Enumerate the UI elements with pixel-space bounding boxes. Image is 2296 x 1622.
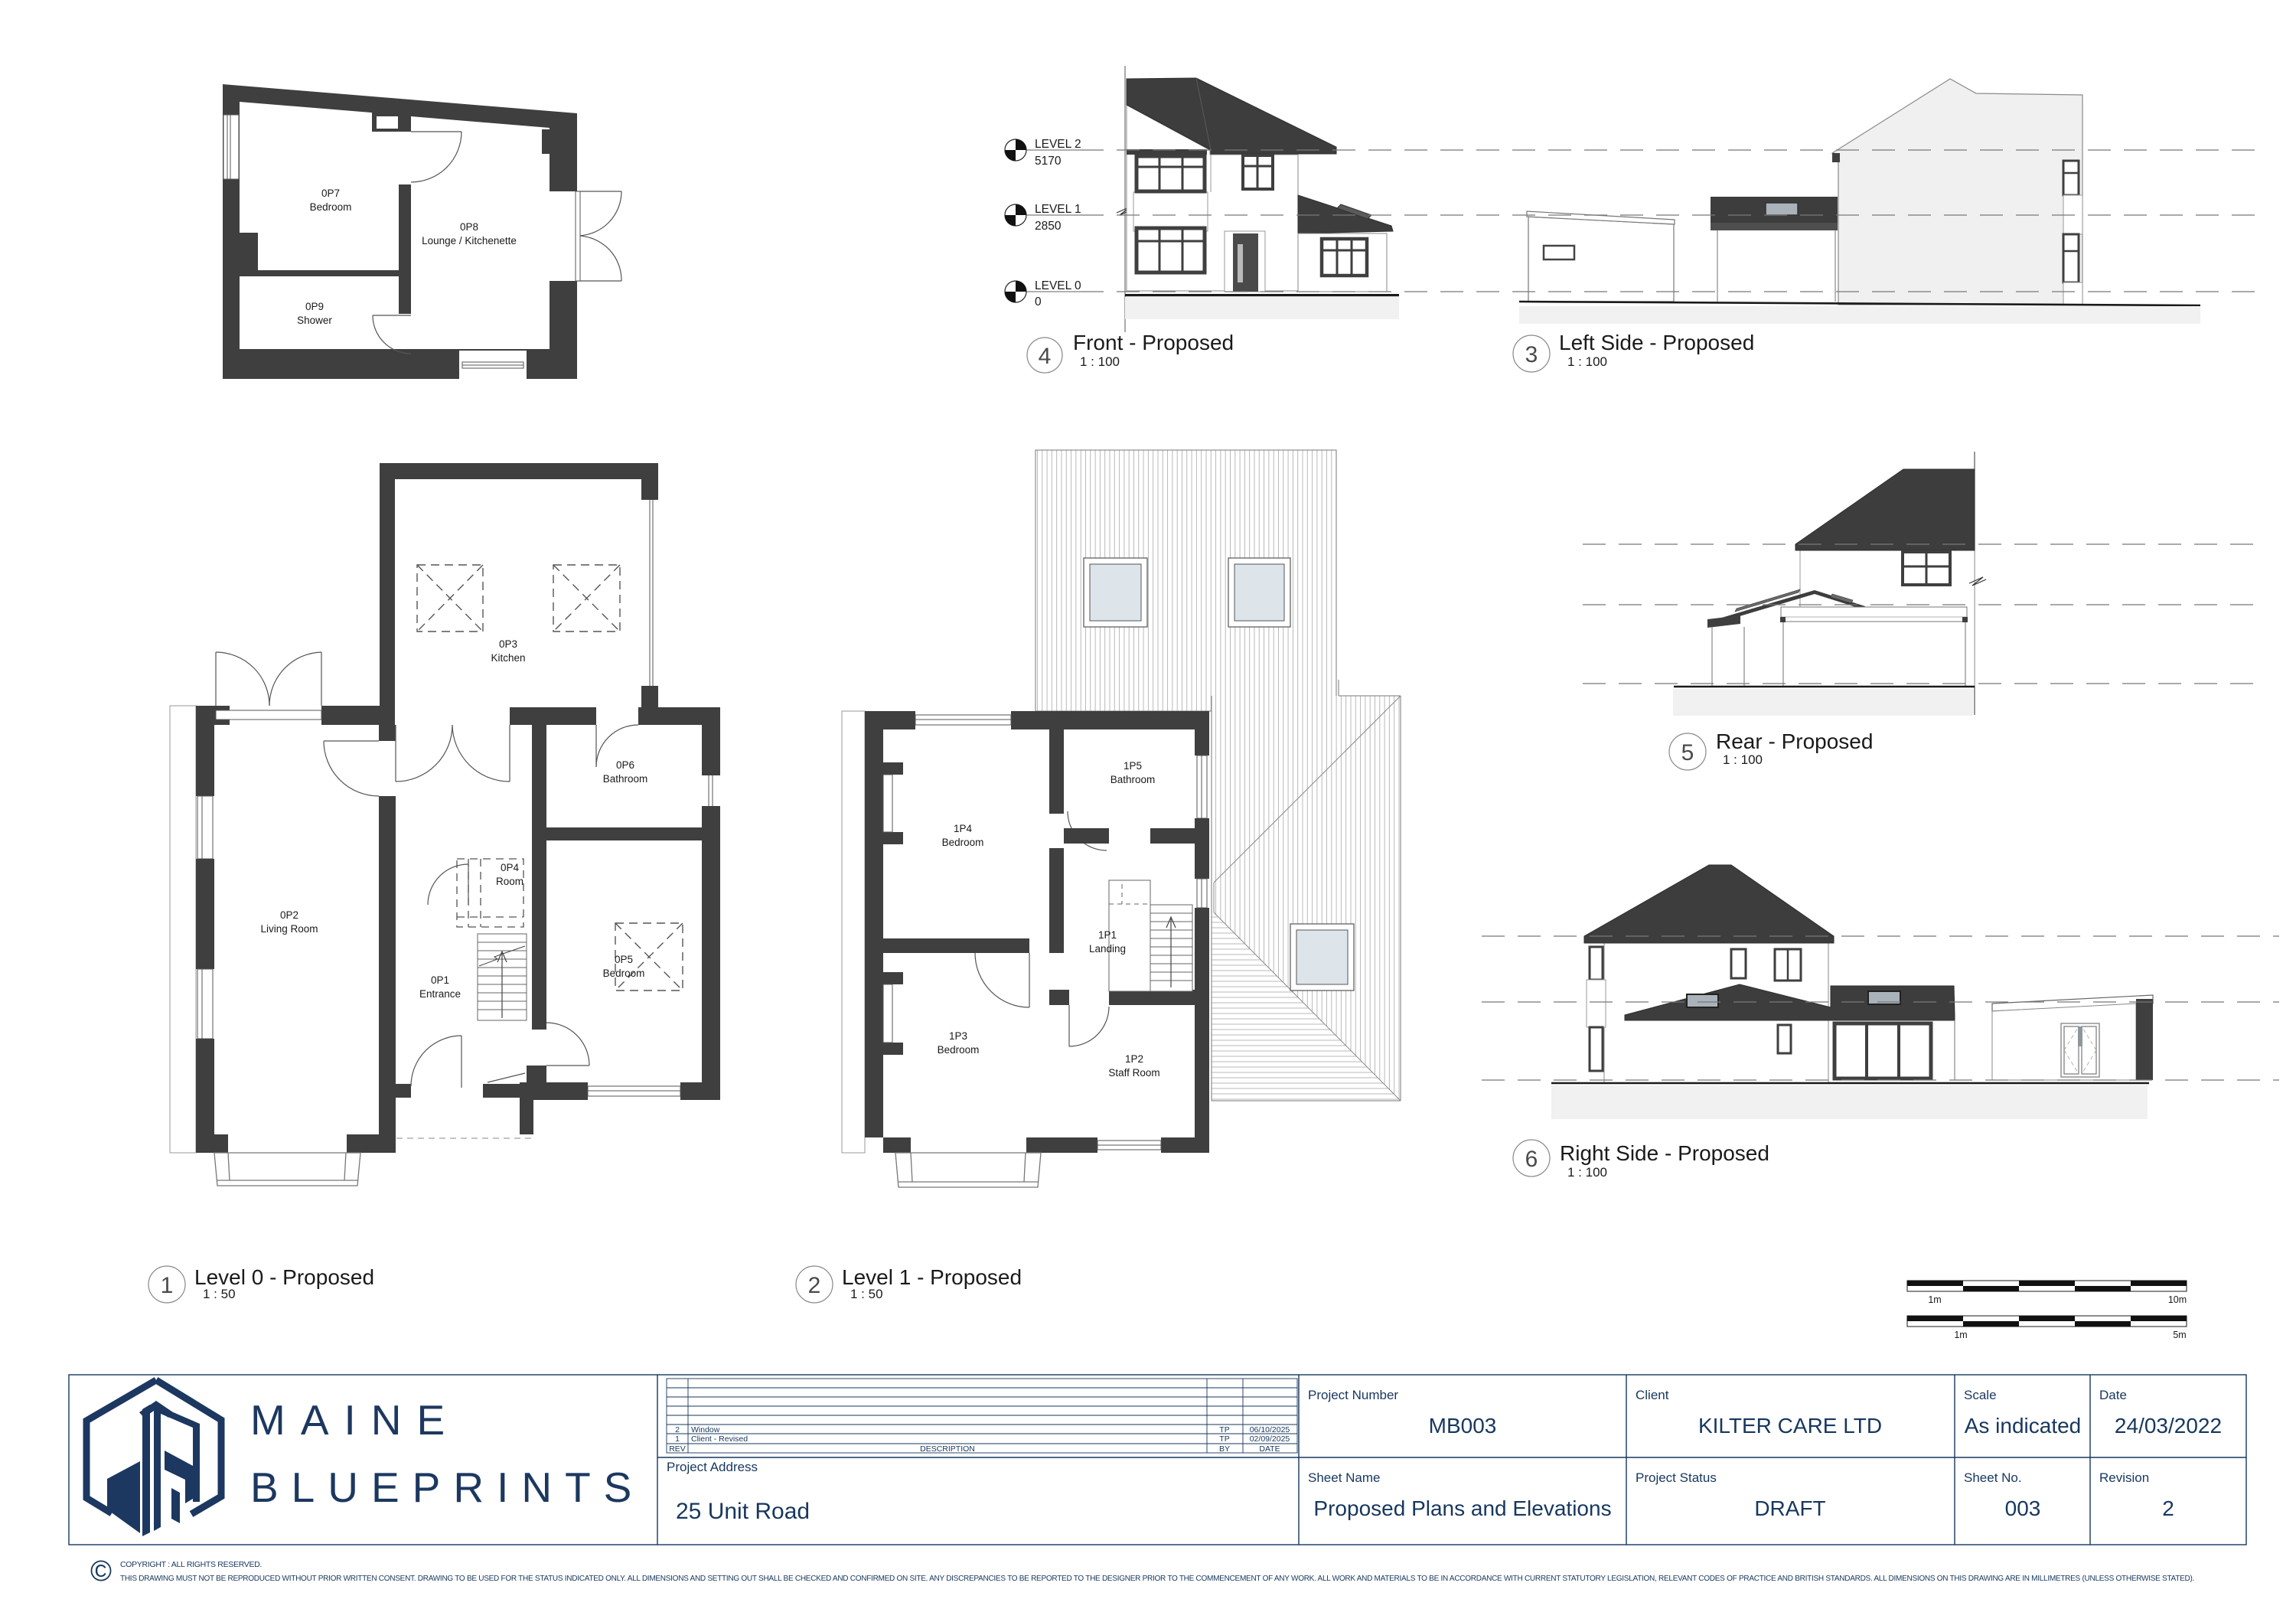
svg-text:Client - Revised: Client - Revised	[691, 1434, 748, 1444]
svg-text:1 : 50: 1 : 50	[203, 1287, 236, 1301]
svg-text:DESCRIPTION: DESCRIPTION	[920, 1444, 975, 1454]
svg-text:1P5: 1P5	[1124, 760, 1142, 772]
svg-text:Right Side - Proposed: Right Side - Proposed	[1560, 1141, 1769, 1165]
svg-text:Date: Date	[2099, 1388, 2127, 1402]
svg-text:1 : 100: 1 : 100	[1723, 752, 1763, 767]
svg-text:Bedroom: Bedroom	[310, 201, 352, 213]
svg-text:LEVEL 0: LEVEL 0	[1035, 279, 1081, 292]
svg-text:TP: TP	[1219, 1425, 1229, 1434]
svg-text:Bathroom: Bathroom	[603, 773, 648, 785]
svg-text:Project Address: Project Address	[667, 1460, 758, 1474]
svg-text:0: 0	[1035, 295, 1042, 308]
svg-text:0P6: 0P6	[616, 759, 634, 771]
svg-text:0P7: 0P7	[321, 188, 340, 199]
svg-text:Level 1 - Proposed: Level 1 - Proposed	[842, 1265, 1022, 1289]
svg-text:1P1: 1P1	[1098, 929, 1117, 941]
svg-text:Client: Client	[1636, 1388, 1669, 1402]
svg-text:Living Room: Living Room	[260, 923, 318, 935]
svg-text:1P2: 1P2	[1125, 1053, 1143, 1065]
svg-text:1m: 1m	[1954, 1330, 1967, 1340]
svg-text:COPYRIGHT : ALL RIGHTS RESERVE: COPYRIGHT : ALL RIGHTS RESERVED.	[120, 1560, 262, 1569]
svg-text:1P4: 1P4	[954, 823, 973, 834]
svg-text:Revision: Revision	[2099, 1470, 2149, 1485]
svg-text:24/03/2022: 24/03/2022	[2115, 1414, 2222, 1438]
svg-text:Window: Window	[691, 1425, 720, 1434]
svg-text:Left Side - Proposed: Left Side - Proposed	[1559, 331, 1754, 354]
svg-text:1P3: 1P3	[949, 1030, 967, 1042]
svg-text:MAINE: MAINE	[250, 1396, 460, 1444]
svg-text:DATE: DATE	[1259, 1444, 1280, 1454]
svg-text:Level 0 - Proposed: Level 0 - Proposed	[194, 1265, 374, 1289]
svg-text:0P2: 0P2	[280, 909, 298, 921]
svg-text:Staff Room: Staff Room	[1108, 1067, 1159, 1079]
svg-text:Sheet Name: Sheet Name	[1308, 1470, 1381, 1485]
svg-text:Bedroom: Bedroom	[603, 968, 645, 979]
svg-text:5170: 5170	[1035, 155, 1062, 168]
svg-text:0P3: 0P3	[499, 638, 517, 650]
svg-text:©: ©	[90, 1555, 112, 1588]
svg-text:Front - Proposed: Front - Proposed	[1073, 331, 1234, 354]
svg-text:Rear - Proposed: Rear - Proposed	[1716, 729, 1873, 753]
svg-text:LEVEL 1: LEVEL 1	[1035, 203, 1081, 216]
svg-text:0P5: 0P5	[615, 954, 633, 965]
svg-text:1 : 100: 1 : 100	[1080, 354, 1120, 369]
svg-text:1 : 50: 1 : 50	[850, 1287, 883, 1301]
svg-text:2: 2	[808, 1273, 821, 1298]
svg-text:1: 1	[675, 1434, 680, 1444]
svg-text:Lounge / Kitchenette: Lounge / Kitchenette	[422, 235, 517, 246]
svg-text:DRAFT: DRAFT	[1754, 1496, 1825, 1520]
svg-text:003: 003	[2005, 1496, 2041, 1520]
svg-text:5m: 5m	[2173, 1330, 2186, 1340]
svg-text:2850: 2850	[1035, 220, 1062, 233]
svg-text:Bedroom: Bedroom	[938, 1044, 980, 1056]
svg-text:Proposed Plans and Elevations: Proposed Plans and Elevations	[1313, 1496, 1611, 1520]
svg-text:Sheet No.: Sheet No.	[1964, 1470, 2022, 1485]
svg-text:25 Unit Road: 25 Unit Road	[676, 1499, 810, 1524]
svg-text:4: 4	[1039, 344, 1052, 369]
svg-text:02/09/2025: 02/09/2025	[1250, 1434, 1290, 1444]
svg-text:2: 2	[2162, 1496, 2174, 1520]
svg-text:MB003: MB003	[1429, 1414, 1497, 1438]
svg-text:LEVEL 2: LEVEL 2	[1035, 138, 1081, 151]
svg-text:0P1: 0P1	[431, 974, 449, 986]
svg-text:Entrance: Entrance	[419, 988, 461, 1000]
svg-text:5: 5	[1681, 740, 1694, 765]
svg-text:Kitchen: Kitchen	[491, 652, 525, 664]
svg-text:3: 3	[1525, 342, 1538, 367]
svg-text:06/10/2025: 06/10/2025	[1250, 1425, 1290, 1434]
svg-text:Shower: Shower	[297, 315, 332, 326]
svg-text:1: 1	[161, 1273, 174, 1298]
svg-text:0P4: 0P4	[501, 862, 520, 873]
svg-text:10m: 10m	[2168, 1294, 2187, 1305]
svg-text:Room: Room	[496, 876, 523, 887]
svg-text:2: 2	[675, 1425, 680, 1434]
svg-text:1m: 1m	[1928, 1294, 1941, 1305]
svg-text:THIS DRAWING MUST NOT BE REPRO: THIS DRAWING MUST NOT BE REPRODUCED WITH…	[120, 1574, 2194, 1583]
svg-text:Project Number: Project Number	[1308, 1388, 1398, 1402]
svg-text:0P8: 0P8	[460, 221, 478, 233]
svg-text:Bedroom: Bedroom	[942, 837, 984, 848]
svg-text:As indicated: As indicated	[1965, 1414, 2082, 1438]
svg-text:REV: REV	[669, 1444, 686, 1454]
svg-text:TP: TP	[1219, 1434, 1229, 1444]
svg-text:Scale: Scale	[1964, 1388, 1997, 1402]
svg-text:Project Status: Project Status	[1636, 1470, 1717, 1485]
svg-text:0P9: 0P9	[305, 301, 324, 312]
svg-text:Landing: Landing	[1089, 943, 1126, 955]
svg-text:1 : 100: 1 : 100	[1567, 1165, 1607, 1180]
svg-text:BLUEPRINTS: BLUEPRINTS	[250, 1464, 644, 1511]
svg-text:BY: BY	[1219, 1444, 1230, 1454]
svg-text:6: 6	[1525, 1147, 1538, 1172]
svg-text:KILTER CARE LTD: KILTER CARE LTD	[1698, 1414, 1882, 1438]
svg-text:Bathroom: Bathroom	[1110, 774, 1156, 785]
svg-text:1 : 100: 1 : 100	[1567, 354, 1607, 369]
